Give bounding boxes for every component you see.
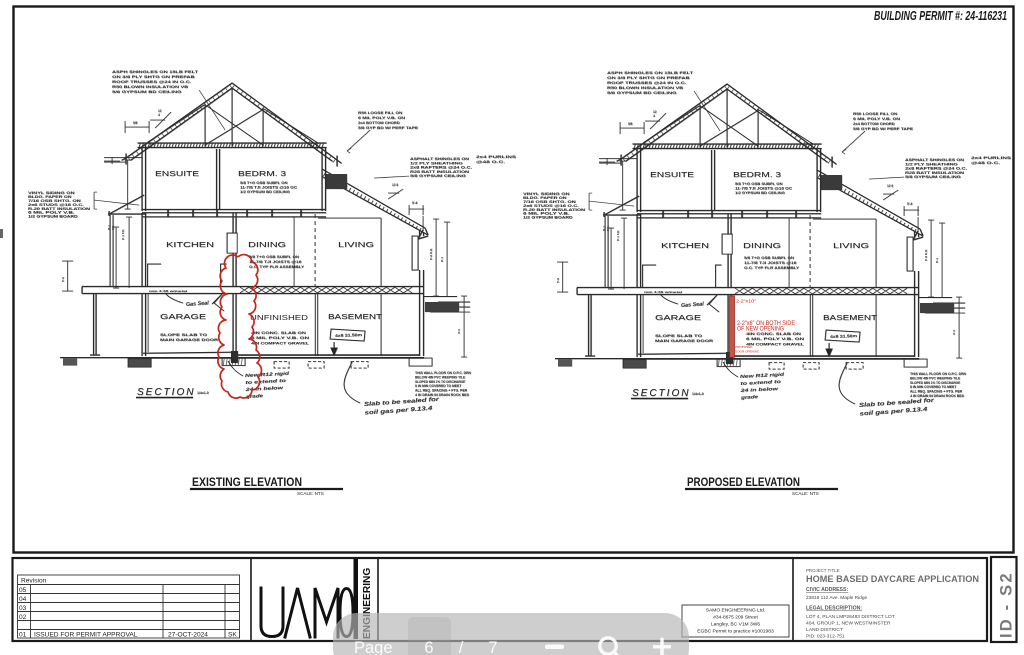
svg-text:01: 01	[19, 632, 27, 639]
svg-text:DOOR OPENING: DOOR OPENING	[735, 349, 760, 353]
svg-text:SCALE: NTS: SCALE: NTS	[792, 491, 819, 496]
svg-text:PROJECT TITLE: PROJECT TITLE	[806, 568, 840, 573]
svg-text:ID - S2: ID - S2	[998, 571, 1016, 638]
svg-text:2-2"x10": 2-2"x10"	[736, 299, 756, 304]
svg-text:03: 03	[19, 605, 27, 612]
svg-text:05: 05	[19, 587, 27, 594]
svg-text:BUILDING PERMIT #: 24-116231: BUILDING PERMIT #: 24-116231	[874, 9, 1007, 23]
svg-text:EGBC Permit to practice #1001: EGBC Permit to practice #1001983	[697, 629, 774, 635]
svg-text:#34-8675 209 Street: #34-8675 209 Street	[713, 615, 758, 621]
svg-text:SAMO ENGINEERING Ltd.: SAMO ENGINEERING Ltd.	[706, 608, 766, 614]
svg-text:PROPOSED ELEVATION: PROPOSED ELEVATION	[687, 477, 800, 489]
svg-text:EXISTING ELEVATION: EXISTING ELEVATION	[192, 477, 302, 489]
svg-text:Page: Page	[354, 639, 393, 655]
svg-text:SK: SK	[228, 632, 237, 639]
svg-text:04: 04	[19, 596, 27, 603]
svg-text:SCALE: NTS: SCALE: NTS	[297, 491, 324, 496]
svg-text:27-OCT-2024: 27-OCT-2024	[168, 632, 208, 639]
svg-text:404, GROUP 1, NEW WESTMINSTER: 404, GROUP 1, NEW WESTMINSTER	[806, 621, 891, 627]
svg-text:7: 7	[488, 639, 497, 655]
svg-text:HOME BASED DAYCARE APPLICATION: HOME BASED DAYCARE APPLICATION	[806, 574, 979, 585]
svg-text:LOT 4, PLAN LMP26483 DISTRICT: LOT 4, PLAN LMP26483 DISTRICT LOT	[806, 614, 895, 620]
svg-text:PID: 023-312-751: PID: 023-312-751	[806, 634, 845, 640]
svg-text:Revision: Revision	[21, 578, 47, 585]
svg-text:LAND DISTRICT: LAND DISTRICT	[806, 627, 843, 633]
svg-text:ISSUED FOR PERMIT APPROVAL: ISSUED FOR PERMIT APPROVAL	[34, 632, 138, 639]
svg-text:Langley, BC V1M 3W6: Langley, BC V1M 3W6	[711, 622, 760, 628]
svg-text:6: 6	[424, 639, 433, 655]
svg-text:02: 02	[19, 614, 27, 621]
svg-text:23818 112 Ave. Maple Ridge: 23818 112 Ave. Maple Ridge	[806, 595, 867, 601]
svg-text:LEGAL DESCRIPTION:: LEGAL DESCRIPTION:	[806, 606, 862, 612]
svg-text:CIVIC ADDRESS:: CIVIC ADDRESS:	[806, 587, 848, 593]
svg-text:UNFINISHED: UNFINISHED	[250, 313, 309, 322]
svg-text:OF NEW OPENING: OF NEW OPENING	[737, 326, 784, 332]
svg-text:/: /	[459, 639, 464, 655]
